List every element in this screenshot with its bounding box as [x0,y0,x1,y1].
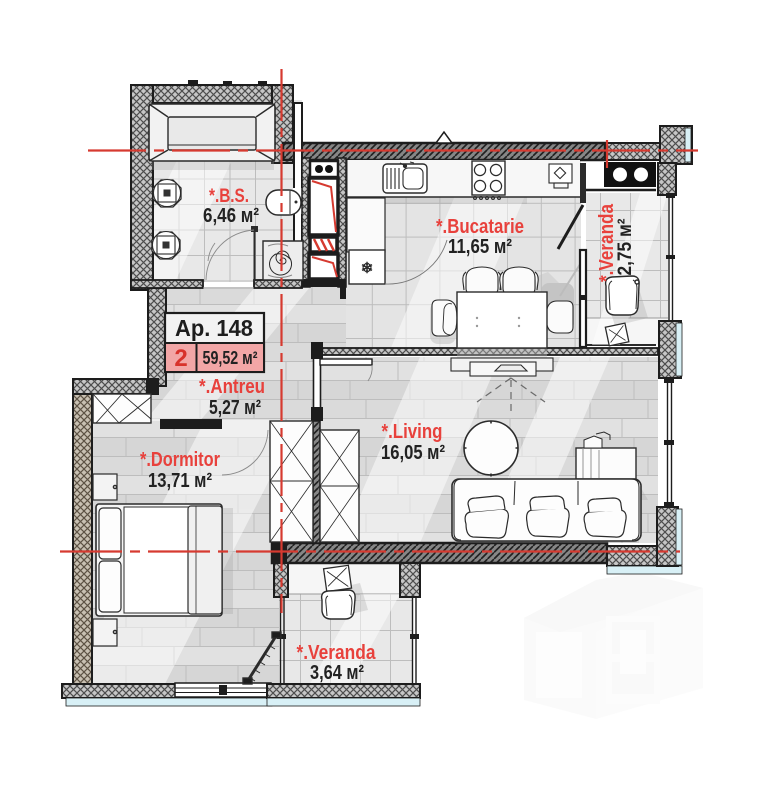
svg-text:*.Dormitor: *.Dormitor [140,449,220,471]
svg-text:*.Living: *.Living [382,421,443,443]
svg-text:2,75 м²: 2,75 м² [615,219,636,276]
svg-text:2: 2 [174,345,187,372]
svg-text:16,05 м²: 16,05 м² [381,442,445,464]
svg-text:13,71 м²: 13,71 м² [148,470,212,492]
svg-text:6,46 м²: 6,46 м² [203,205,259,227]
svg-text:❄: ❄ [361,260,374,277]
svg-text:*.B.S.: *.B.S. [209,186,249,207]
svg-text:Ap. 148: Ap. 148 [175,315,253,341]
svg-text:*.Bucatarie: *.Bucatarie [436,216,524,238]
svg-text:5,27 м²: 5,27 м² [209,397,261,419]
svg-text:59,52 м²: 59,52 м² [203,348,258,368]
svg-text:11,65 м²: 11,65 м² [448,236,512,258]
svg-text:3,64 м²: 3,64 м² [310,662,364,684]
svg-text:*.Veranda: *.Veranda [297,642,377,664]
svg-text:*.Antreu: *.Antreu [199,376,265,398]
